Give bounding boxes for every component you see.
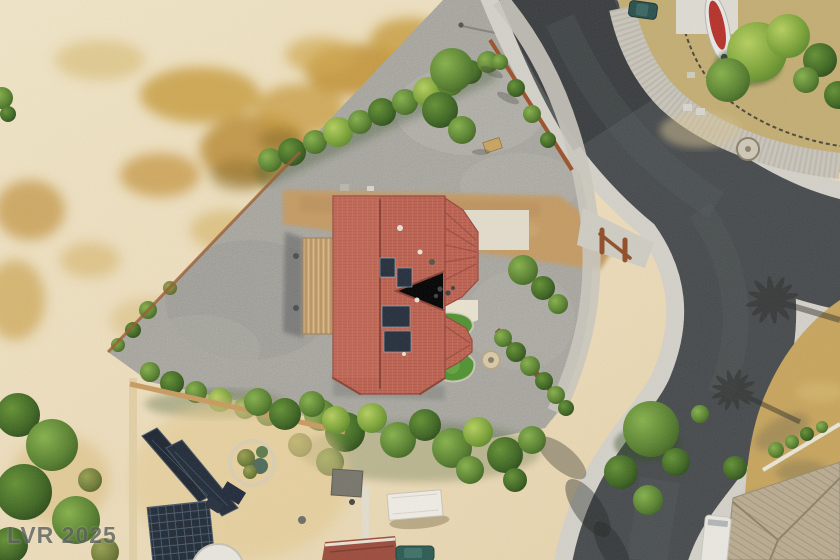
aerial-photo: LVR 2025 <box>0 0 840 560</box>
aerial-photo-canvas <box>0 0 840 560</box>
photo-grain <box>0 0 840 560</box>
watermark: LVR 2025 <box>7 522 117 549</box>
